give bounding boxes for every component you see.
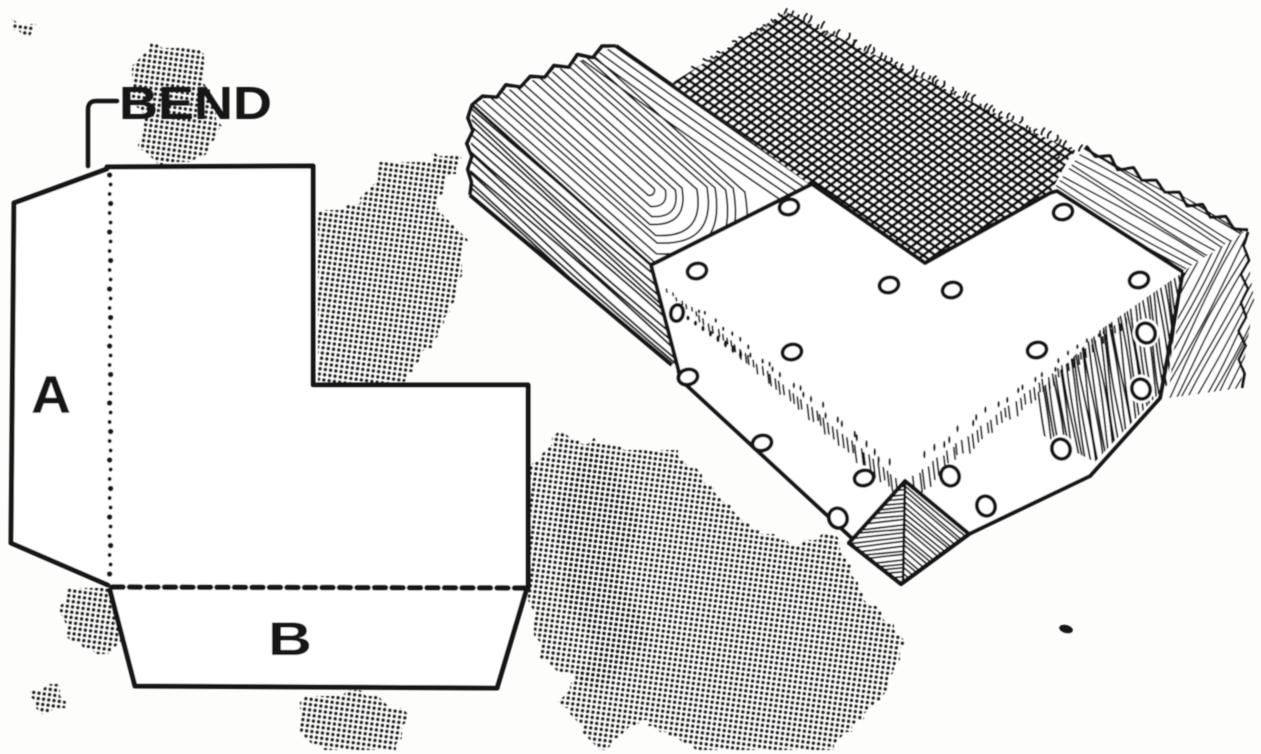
svg-text:BEND: BEND: [119, 77, 272, 129]
svg-text:A: A: [31, 366, 71, 425]
svg-text:B: B: [268, 612, 312, 665]
